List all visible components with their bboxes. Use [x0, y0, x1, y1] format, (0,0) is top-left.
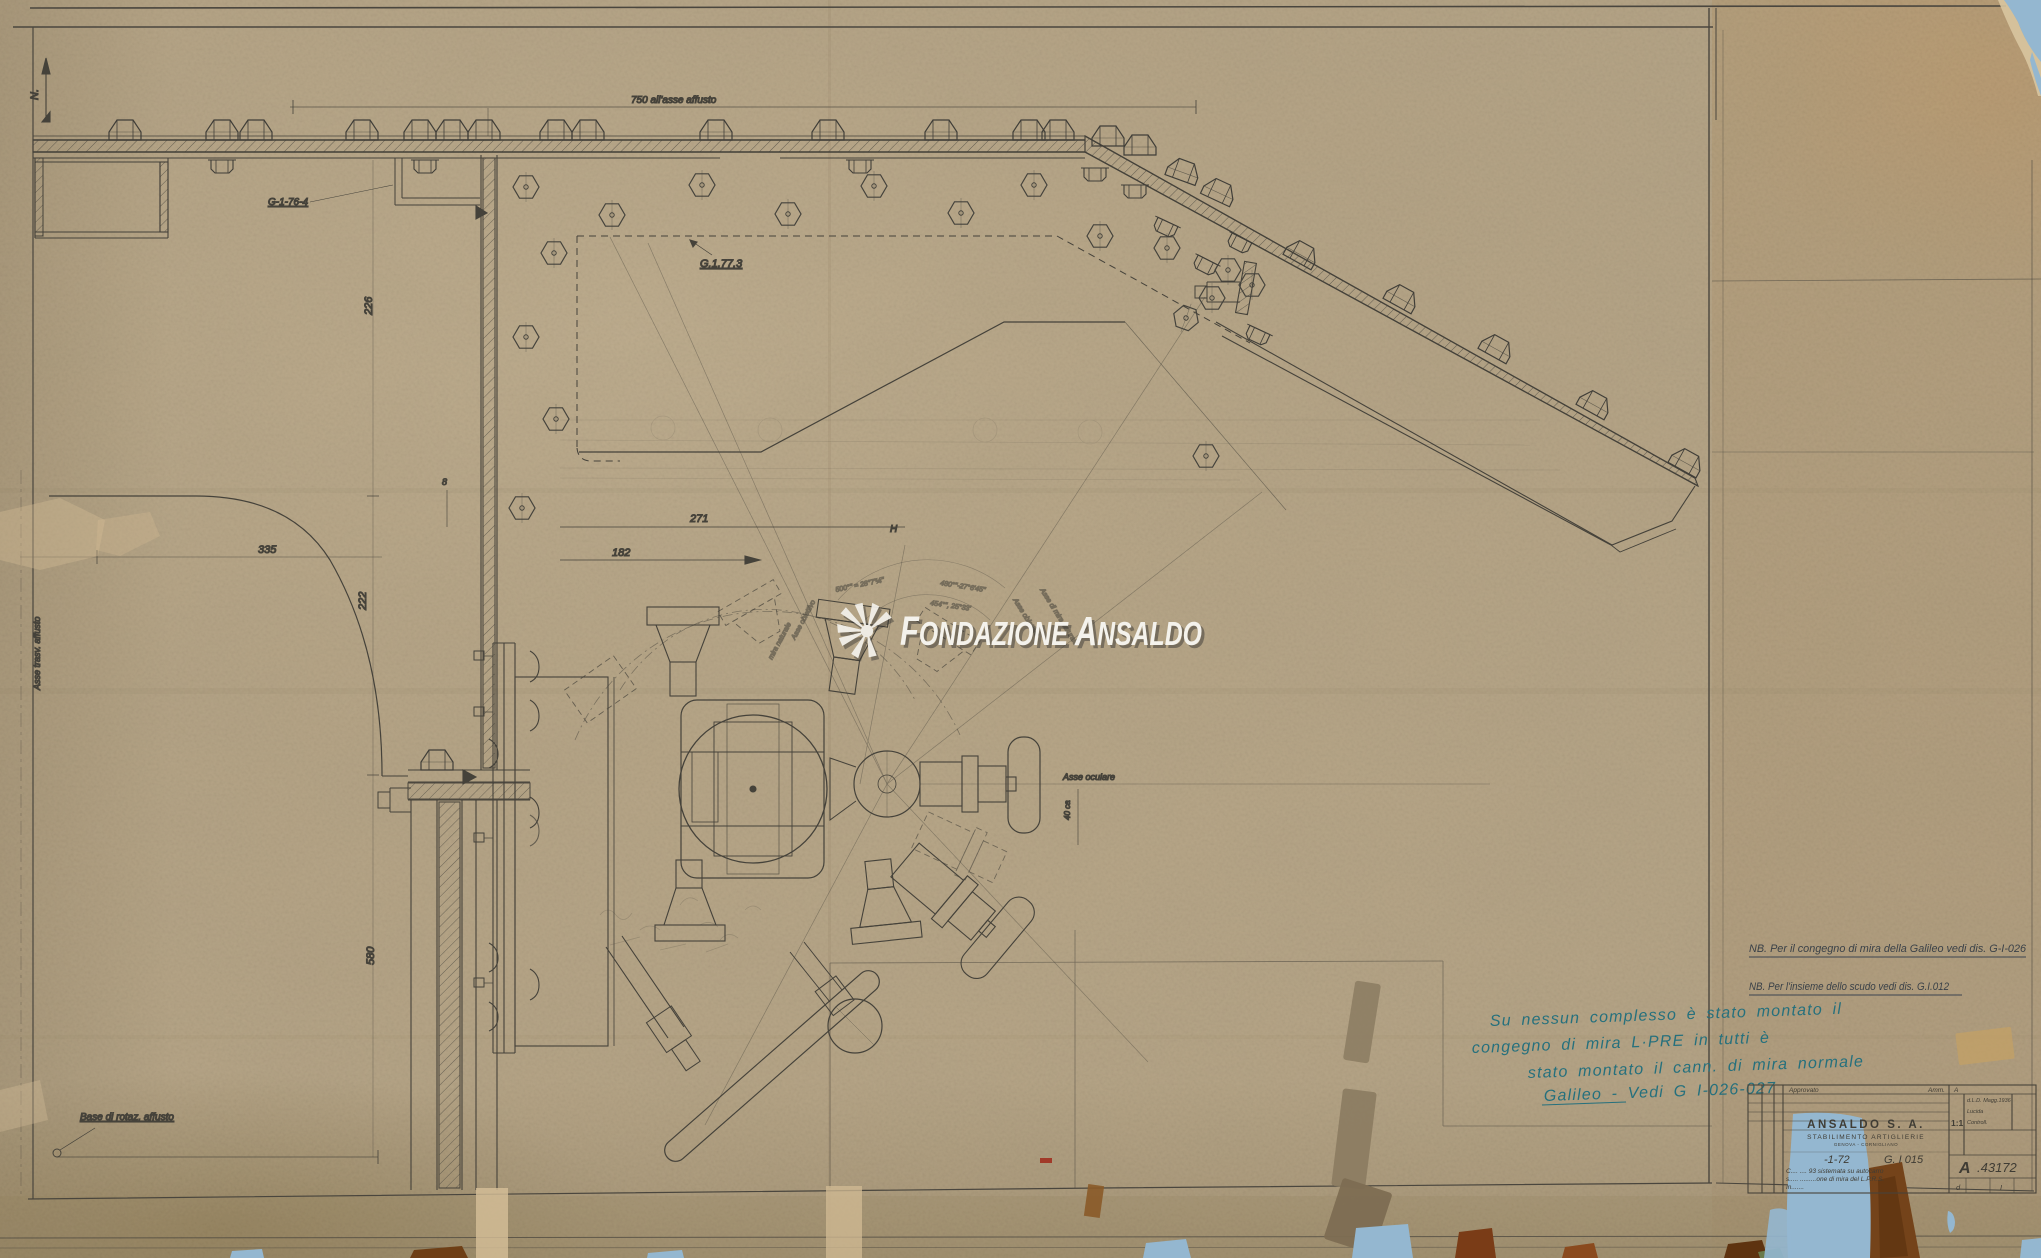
svg-text:A: A: [1953, 1087, 1958, 1094]
svg-text:40 ca: 40 ca: [1063, 800, 1072, 820]
svg-text:750 all'asse affusto: 750 all'asse affusto: [631, 95, 717, 106]
svg-text:NB. Per l'insieme dello scudo: NB. Per l'insieme dello scudo vedi dis. …: [1749, 981, 1949, 993]
svg-text:N.: N.: [29, 89, 41, 100]
svg-text:H: H: [890, 524, 898, 535]
svg-text:580: 580: [365, 946, 377, 965]
svg-text:335: 335: [258, 544, 277, 556]
svg-text:G.1.77.3: G.1.77.3: [700, 258, 743, 270]
svg-text:s..... .........one di mira d: s..... .........one di mira del L.P.R.S.: [1786, 1176, 1884, 1183]
svg-text:182: 182: [612, 547, 630, 559]
svg-text:STABILIMENTO ARTIGLIERIE: STABILIMENTO ARTIGLIERIE: [1807, 1134, 1925, 1141]
svg-text:Approvato: Approvato: [1788, 1087, 1819, 1094]
svg-text:GENOVA - CORNIGLIANO: GENOVA - CORNIGLIANO: [1834, 1142, 1898, 1147]
svg-text:8: 8: [442, 477, 447, 487]
svg-text:Asse oculare: Asse oculare: [1062, 772, 1115, 782]
svg-text:Lucida: Lucida: [1967, 1109, 1983, 1115]
svg-text:FONDAZIONE ANSALDO: FONDAZIONE ANSALDO: [900, 608, 1202, 654]
svg-text:-1-72: -1-72: [1824, 1154, 1850, 1166]
svg-text:G-1-76-4: G-1-76-4: [268, 197, 308, 208]
svg-text:d.L.D. Magg.1936: d.L.D. Magg.1936: [1967, 1098, 2012, 1104]
svg-text:.43172: .43172: [1977, 1160, 2018, 1175]
svg-text:Controll.: Controll.: [1967, 1120, 1987, 1126]
svg-text:Base di rotaz. affusto: Base di rotaz. affusto: [80, 1112, 174, 1123]
svg-text:NB. Per il congegno di mira de: NB. Per il congegno di mira della Galile…: [1749, 943, 2027, 955]
svg-text:A: A: [1958, 1160, 1971, 1177]
svg-text:G. I 015: G. I 015: [1884, 1154, 1924, 1166]
svg-text:1:1: 1:1: [1951, 1118, 1964, 1128]
svg-text:271: 271: [689, 513, 708, 525]
svg-text:ANSALDO S. A.: ANSALDO S. A.: [1807, 1119, 1925, 1131]
svg-text:I: I: [2000, 1183, 2002, 1192]
svg-text:Amm.: Amm.: [1927, 1087, 1945, 1094]
svg-text:C.... .... 93 sistemata su a: C.... .... 93 sistemata su autocarro: [1786, 1168, 1884, 1175]
svg-text:Asse trasv. affusto: Asse trasv. affusto: [32, 617, 42, 691]
svg-text:222: 222: [357, 592, 369, 611]
svg-text:In.......: In.......: [1786, 1184, 1804, 1191]
